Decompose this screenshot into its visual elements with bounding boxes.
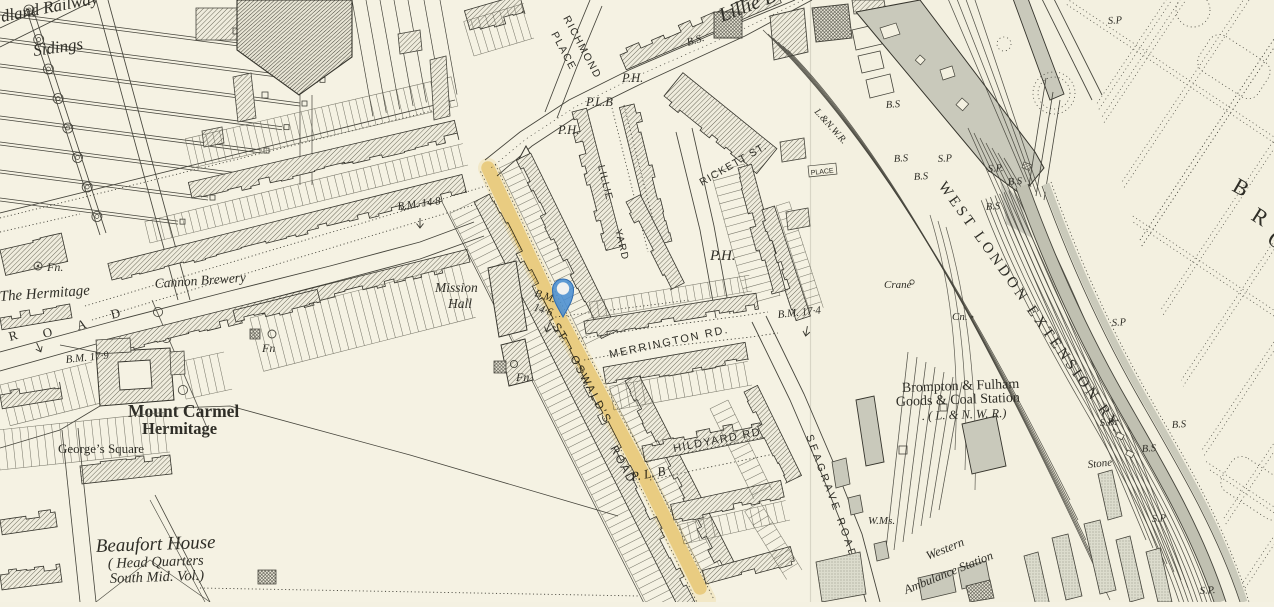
- svg-text:B.S: B.S: [1141, 443, 1157, 455]
- svg-text:S.P.: S.P.: [987, 163, 1003, 175]
- svg-text:P.H.: P.H.: [709, 248, 736, 264]
- svg-text:Fn.: Fn.: [46, 260, 63, 274]
- svg-text:S.P: S.P: [1107, 15, 1123, 27]
- svg-text:South Mid. Vol.): South Mid. Vol.): [110, 568, 205, 587]
- svg-text:S.P: S.P: [937, 153, 953, 165]
- svg-text:W.Ms.: W.Ms.: [868, 515, 895, 527]
- svg-text:Mission: Mission: [434, 280, 478, 295]
- svg-text:B.S: B.S: [985, 201, 1001, 213]
- svg-text:Hall: Hall: [447, 296, 472, 311]
- svg-text:B.S: B.S: [1007, 176, 1023, 188]
- svg-text:S.P: S.P: [1151, 513, 1167, 525]
- svg-text:S.P: S.P: [1111, 317, 1127, 329]
- svg-text:S.B.: S.B.: [1099, 417, 1117, 429]
- svg-text:B.S: B.S: [913, 171, 929, 183]
- svg-text:B.S: B.S: [885, 99, 901, 111]
- svg-text:B.S: B.S: [1171, 419, 1187, 431]
- svg-text:Crane: Crane: [884, 279, 912, 291]
- svg-text:Fn: Fn: [515, 370, 529, 384]
- svg-text:P.H.: P.H.: [557, 123, 579, 137]
- svg-text:B.S: B.S: [893, 153, 909, 165]
- svg-text:S.P.: S.P.: [1199, 585, 1215, 597]
- svg-text:Mount Carmel: Mount Carmel: [128, 401, 239, 421]
- svg-text:P.H.: P.H.: [621, 71, 643, 85]
- svg-text:P.L.B: P.L.B: [585, 95, 613, 109]
- svg-text:. ( L. & N. W. R.): . ( L. & N. W. R.): [922, 406, 1007, 423]
- svg-text:Hermitage: Hermitage: [142, 419, 217, 438]
- svg-text:Cn.: Cn.: [952, 311, 968, 323]
- svg-text:Stone: Stone: [1087, 456, 1113, 471]
